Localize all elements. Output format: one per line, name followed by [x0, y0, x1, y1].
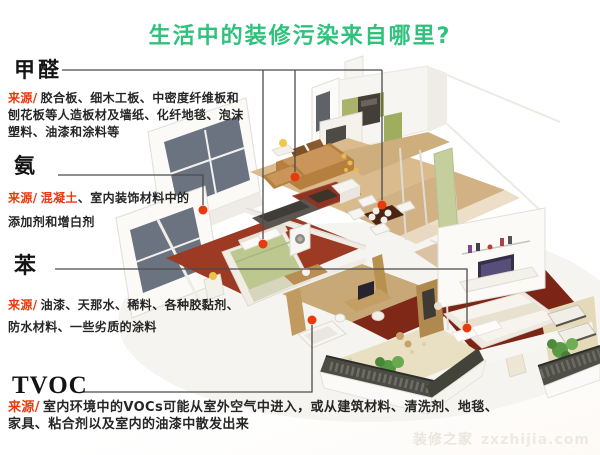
source-label: 来源/ — [8, 400, 40, 415]
section-label-formaldehyde: 甲醛 — [14, 54, 62, 84]
section-desc-tvoc: 来源/室内环境中的VOCs可能从室外空气中进入，或从建筑材料、清洗剂、地毯、 家… — [8, 399, 596, 433]
section-label-ammonia: 氨 — [14, 150, 38, 180]
marker-formaldehyde-bed — [259, 240, 268, 249]
source-text: 室内环境中的VOCs可能从室外空气中进入，或从建筑材料、清洗剂、地毯、 家具、粘… — [8, 400, 498, 432]
section-label-benzene: 苯 — [14, 248, 39, 280]
marker-tvoc-bathroom — [308, 316, 317, 325]
watermark-domain: zxzhijia.com — [481, 432, 590, 448]
infographic-decoration-pollution: 生活中的装修污染来自哪里? 甲醛 来源/胶合板、细木工板、中密度纤维板和 刨花板… — [0, 0, 600, 455]
section-desc-benzene: 来源/油漆、天那水、稀料、各种胶黏剂、 防水材料、一些劣质的涂料 — [8, 294, 242, 338]
source-label: 来源/ — [8, 91, 38, 105]
section-label-tvoc: TVOC — [12, 372, 88, 400]
marker-formaldehyde-sofa — [291, 173, 300, 182]
section-desc-formaldehyde: 来源/胶合板、细木工板、中密度纤维板和 刨花板等人造板材及墙纸、化纤地毯、泡沫 … — [8, 90, 248, 141]
watermark: 装修之家zxzhijia.com — [413, 429, 590, 449]
marker-benzene-masterbed — [463, 324, 472, 333]
source-text: 胶合板、细木工板、中密度纤维板和 刨花板等人造板材及墙纸、化纤地毯、泡沫 塑料、… — [8, 91, 244, 139]
source-text: 油漆、天那水、稀料、各种胶黏剂、 防水材料、一些劣质的涂料 — [8, 298, 239, 334]
page-title: 生活中的装修污染来自哪里? — [0, 18, 600, 50]
source-label: 来源/ — [8, 191, 38, 205]
watermark-site-name: 装修之家 — [413, 432, 473, 448]
source-label: 来源/ — [8, 298, 38, 312]
section-desc-ammonia: 来源/混凝土、室内装饰材料中的 添加剂和增白剂 — [8, 186, 234, 234]
source-highlight: 混凝土 — [41, 191, 78, 205]
marker-formaldehyde-dining — [378, 201, 387, 210]
